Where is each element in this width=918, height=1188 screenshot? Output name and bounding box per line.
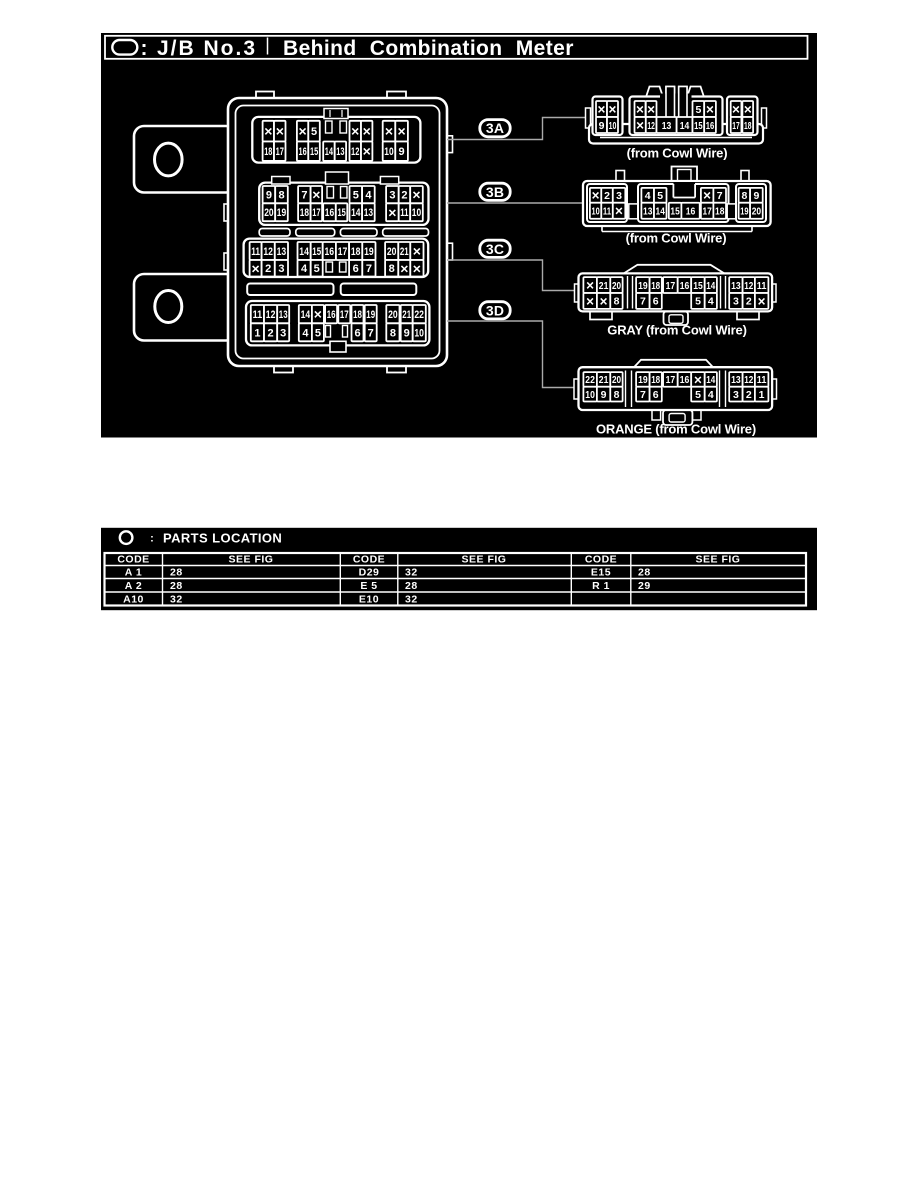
svg-text:18: 18: [744, 120, 752, 132]
svg-text:5: 5: [311, 126, 317, 138]
svg-text:×: ×: [586, 278, 594, 293]
svg-text:SEE FIG: SEE FIG: [229, 553, 274, 565]
svg-text:×: ×: [758, 294, 766, 309]
svg-text:14: 14: [325, 146, 334, 158]
svg-text:5: 5: [695, 389, 701, 401]
svg-text:8: 8: [741, 190, 747, 202]
svg-text:×: ×: [398, 123, 406, 139]
svg-text:17: 17: [312, 207, 320, 219]
svg-text:11: 11: [757, 280, 767, 292]
svg-text:7: 7: [640, 389, 646, 401]
svg-text:E15: E15: [591, 566, 611, 578]
svg-text:9: 9: [599, 120, 605, 132]
svg-text:A10: A10: [123, 593, 144, 605]
svg-text:×: ×: [363, 123, 371, 139]
svg-text:CODE: CODE: [353, 553, 385, 565]
svg-text:17: 17: [666, 280, 676, 292]
svg-text:12: 12: [647, 120, 655, 132]
svg-text:14: 14: [706, 374, 715, 386]
svg-text:20: 20: [612, 280, 621, 292]
svg-text:5: 5: [353, 190, 359, 202]
svg-text:3: 3: [733, 296, 739, 308]
svg-text:15: 15: [337, 207, 345, 219]
svg-text:CODE: CODE: [117, 553, 149, 565]
svg-text:7: 7: [640, 296, 646, 308]
svg-text:13: 13: [279, 309, 288, 321]
svg-text:11: 11: [757, 374, 767, 386]
svg-text:19: 19: [277, 207, 286, 219]
svg-text:GRAY (from Cowl Wire): GRAY (from Cowl Wire): [607, 323, 746, 338]
svg-text:16: 16: [299, 146, 307, 158]
svg-text:15: 15: [670, 206, 680, 218]
svg-text:E10: E10: [359, 593, 379, 605]
svg-text:12: 12: [744, 280, 753, 292]
svg-text:2: 2: [401, 190, 407, 202]
svg-text::: :: [150, 533, 154, 545]
svg-text:20: 20: [387, 246, 397, 258]
svg-text:2: 2: [265, 263, 271, 275]
svg-text:14: 14: [299, 246, 309, 258]
svg-text:9: 9: [266, 190, 272, 202]
svg-text:×: ×: [600, 294, 608, 309]
svg-text:15: 15: [693, 280, 703, 292]
svg-text:×: ×: [276, 123, 284, 139]
svg-text:16: 16: [327, 309, 336, 321]
svg-text:A 2: A 2: [125, 580, 142, 592]
svg-text:14: 14: [680, 120, 690, 132]
svg-text:16: 16: [325, 207, 334, 219]
svg-text:17: 17: [276, 146, 284, 158]
svg-text:×: ×: [744, 102, 752, 117]
svg-text:22: 22: [414, 309, 424, 321]
svg-text:×: ×: [385, 123, 393, 139]
svg-text:7: 7: [368, 327, 374, 339]
svg-text:14: 14: [706, 280, 715, 292]
svg-text:14: 14: [351, 207, 361, 219]
svg-text:×: ×: [694, 372, 702, 387]
svg-text:18: 18: [351, 246, 361, 258]
svg-text:20: 20: [388, 309, 398, 321]
svg-text:16: 16: [680, 280, 690, 292]
svg-text:×: ×: [586, 294, 594, 309]
svg-text:6: 6: [354, 327, 360, 339]
svg-text:×: ×: [706, 102, 714, 117]
svg-text:5: 5: [695, 104, 701, 116]
svg-text:3D: 3D: [486, 302, 504, 318]
svg-text:×: ×: [312, 187, 320, 203]
svg-text:7: 7: [366, 263, 372, 275]
svg-text:28: 28: [170, 580, 183, 592]
svg-text:R 1: R 1: [592, 580, 610, 592]
svg-text:13: 13: [336, 146, 344, 158]
svg-text:17: 17: [340, 309, 349, 321]
svg-text:15: 15: [310, 146, 318, 158]
svg-text:9: 9: [753, 190, 759, 202]
svg-text:15: 15: [312, 246, 321, 258]
svg-text:17: 17: [702, 206, 711, 218]
svg-text:16: 16: [686, 206, 696, 218]
svg-text:16: 16: [325, 246, 335, 258]
svg-text:14: 14: [656, 206, 665, 218]
svg-text:16: 16: [706, 120, 715, 132]
svg-text:19: 19: [366, 309, 375, 321]
svg-text:13: 13: [731, 280, 741, 292]
svg-text:8: 8: [614, 389, 620, 401]
svg-text:5: 5: [315, 327, 321, 339]
svg-text:18: 18: [353, 309, 362, 321]
svg-text:×: ×: [412, 187, 420, 203]
svg-text:12: 12: [744, 374, 753, 386]
svg-text:11: 11: [400, 207, 408, 219]
svg-text:6: 6: [653, 389, 659, 401]
svg-text:8: 8: [389, 263, 395, 275]
svg-text:13: 13: [662, 120, 672, 132]
svg-text:4: 4: [302, 327, 309, 339]
svg-text:17: 17: [338, 246, 348, 258]
svg-text:×: ×: [703, 188, 711, 203]
svg-text:×: ×: [636, 118, 644, 133]
svg-text:SEE FIG: SEE FIG: [696, 553, 741, 565]
svg-text:32: 32: [405, 593, 418, 605]
svg-text:28: 28: [638, 566, 651, 578]
svg-text:4: 4: [365, 190, 372, 202]
svg-text:3: 3: [733, 389, 739, 401]
svg-text:9: 9: [399, 146, 405, 158]
svg-text:18: 18: [651, 280, 660, 292]
svg-text:ORANGE (from Cowl Wire): ORANGE (from Cowl Wire): [596, 422, 756, 437]
svg-text:4: 4: [301, 263, 308, 275]
svg-text:15: 15: [694, 120, 703, 132]
svg-text:Behind Combination Meter: Behind Combination Meter: [283, 37, 574, 60]
svg-text:19: 19: [638, 280, 648, 292]
svg-text:9: 9: [601, 389, 607, 401]
svg-text:3: 3: [616, 190, 622, 202]
svg-text:1: 1: [254, 327, 260, 339]
svg-text:8: 8: [390, 327, 396, 339]
svg-text:32: 32: [405, 566, 418, 578]
svg-text:D29: D29: [359, 566, 380, 578]
svg-text:×: ×: [314, 306, 322, 322]
svg-text:8: 8: [278, 190, 284, 202]
svg-text:18: 18: [300, 207, 309, 219]
svg-text:20: 20: [264, 207, 273, 219]
svg-text:28: 28: [405, 580, 418, 592]
svg-text:CODE: CODE: [585, 553, 617, 565]
svg-text:9: 9: [404, 327, 410, 339]
svg-text:×: ×: [363, 143, 371, 159]
svg-text:×: ×: [636, 102, 644, 117]
svg-text:18: 18: [651, 374, 660, 386]
svg-text:21: 21: [599, 280, 609, 292]
svg-text:3C: 3C: [486, 241, 504, 257]
svg-text:10: 10: [592, 206, 600, 218]
svg-text:18: 18: [264, 146, 272, 158]
svg-text:6: 6: [653, 296, 659, 308]
svg-text:×: ×: [252, 260, 260, 276]
svg-text:×: ×: [732, 102, 740, 117]
svg-text:13: 13: [277, 246, 287, 258]
svg-text:SEE FIG: SEE FIG: [462, 553, 507, 565]
svg-text:(from Cowl Wire): (from Cowl Wire): [626, 231, 727, 246]
svg-text:10: 10: [414, 327, 424, 339]
svg-text:13: 13: [364, 207, 373, 219]
svg-text:J/B No.3: J/B No.3: [157, 37, 257, 60]
svg-text:10: 10: [412, 207, 421, 219]
svg-text:32: 32: [170, 593, 183, 605]
svg-text:18: 18: [715, 206, 725, 218]
svg-text:4: 4: [645, 190, 651, 202]
svg-text:3: 3: [278, 263, 284, 275]
svg-text:×: ×: [592, 188, 600, 203]
svg-text:3: 3: [389, 190, 395, 202]
svg-text:×: ×: [388, 204, 396, 220]
svg-text:28: 28: [170, 566, 183, 578]
svg-text:13: 13: [731, 374, 741, 386]
svg-text:29: 29: [638, 580, 651, 592]
svg-text:19: 19: [638, 374, 648, 386]
svg-text:11: 11: [603, 206, 611, 218]
svg-text:1: 1: [759, 389, 765, 401]
svg-text:4: 4: [708, 389, 714, 401]
svg-text:4: 4: [708, 296, 714, 308]
svg-text:19: 19: [364, 246, 374, 258]
svg-text:8: 8: [614, 296, 620, 308]
svg-text:22: 22: [585, 374, 595, 386]
svg-text:3A: 3A: [486, 120, 504, 136]
svg-text:2: 2: [268, 327, 274, 339]
svg-text:11: 11: [251, 246, 260, 258]
svg-text:21: 21: [402, 309, 411, 321]
svg-text:×: ×: [413, 260, 421, 276]
svg-text:17: 17: [732, 120, 740, 132]
svg-text:12: 12: [266, 309, 276, 321]
svg-text:21: 21: [599, 374, 609, 386]
svg-text:13: 13: [643, 206, 653, 218]
svg-text:A 1: A 1: [125, 566, 142, 578]
svg-text:3: 3: [280, 327, 286, 339]
svg-text:2: 2: [746, 389, 752, 401]
svg-text:5: 5: [314, 263, 320, 275]
svg-text:2: 2: [604, 190, 610, 202]
svg-text:×: ×: [413, 243, 421, 259]
svg-text::: :: [141, 37, 148, 60]
svg-text:PARTS LOCATION: PARTS LOCATION: [163, 530, 282, 545]
svg-text:12: 12: [351, 146, 359, 158]
svg-text:20: 20: [612, 374, 621, 386]
svg-text:5: 5: [657, 190, 663, 202]
svg-text:7: 7: [301, 190, 307, 202]
svg-text:17: 17: [666, 374, 676, 386]
svg-text:E 5: E 5: [360, 580, 377, 592]
svg-text:×: ×: [264, 123, 272, 139]
svg-text:14: 14: [301, 309, 311, 321]
svg-text:×: ×: [400, 260, 408, 276]
svg-text:2: 2: [746, 296, 752, 308]
svg-text:19: 19: [740, 206, 748, 218]
svg-text:16: 16: [680, 374, 690, 386]
svg-text:5: 5: [695, 296, 701, 308]
svg-text:×: ×: [598, 102, 606, 117]
svg-text:(from Cowl Wire): (from Cowl Wire): [627, 146, 728, 161]
svg-text:21: 21: [400, 246, 409, 258]
svg-text:10: 10: [609, 120, 617, 132]
svg-text:10: 10: [384, 146, 393, 158]
svg-text:6: 6: [353, 263, 359, 275]
svg-text:×: ×: [299, 123, 307, 139]
svg-text:12: 12: [263, 246, 273, 258]
svg-text:3B: 3B: [486, 184, 504, 200]
svg-text:10: 10: [585, 389, 595, 401]
svg-text:×: ×: [615, 204, 623, 219]
svg-text:×: ×: [647, 102, 655, 117]
svg-text:×: ×: [609, 102, 617, 117]
svg-text:11: 11: [253, 309, 263, 321]
svg-text:×: ×: [351, 123, 359, 139]
svg-text:7: 7: [717, 190, 723, 202]
svg-text:20: 20: [752, 206, 762, 218]
